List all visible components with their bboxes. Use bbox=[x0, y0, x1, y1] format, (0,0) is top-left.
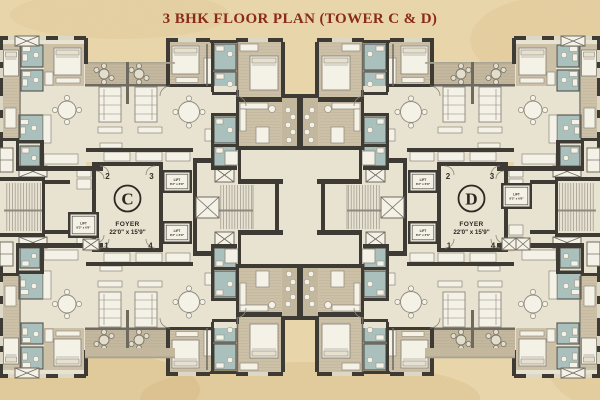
svg-text:8'3" x 6'8": 8'3" x 6'8" bbox=[509, 197, 524, 201]
svg-text:1: 1 bbox=[447, 242, 452, 251]
svg-text:3: 3 bbox=[490, 172, 495, 181]
svg-text:8'3" x 6'8": 8'3" x 6'8" bbox=[170, 182, 185, 186]
svg-text:FOYER: FOYER bbox=[459, 221, 483, 228]
svg-text:8'3" x 6'8": 8'3" x 6'8" bbox=[416, 182, 431, 186]
svg-text:22'0" x 15'9": 22'0" x 15'9" bbox=[453, 229, 489, 236]
svg-text:2: 2 bbox=[446, 172, 451, 181]
svg-text:4: 4 bbox=[148, 242, 153, 251]
svg-text:8'3" x 6'8": 8'3" x 6'8" bbox=[170, 233, 185, 237]
svg-text:8'3" x 6'8": 8'3" x 6'8" bbox=[416, 233, 431, 237]
svg-text:1: 1 bbox=[104, 242, 109, 251]
svg-text:8'3" x 6'8": 8'3" x 6'8" bbox=[76, 226, 91, 230]
svg-text:22'0" x 15'9": 22'0" x 15'9" bbox=[109, 229, 145, 236]
svg-text:D: D bbox=[465, 190, 477, 209]
svg-text:C: C bbox=[121, 190, 133, 209]
svg-text:4: 4 bbox=[491, 242, 496, 251]
svg-text:3: 3 bbox=[149, 172, 154, 181]
svg-text:3 BHK FLOOR PLAN (TOWER C & D): 3 BHK FLOOR PLAN (TOWER C & D) bbox=[163, 11, 438, 27]
svg-text:FOYER: FOYER bbox=[115, 221, 139, 228]
svg-text:2: 2 bbox=[105, 172, 110, 181]
